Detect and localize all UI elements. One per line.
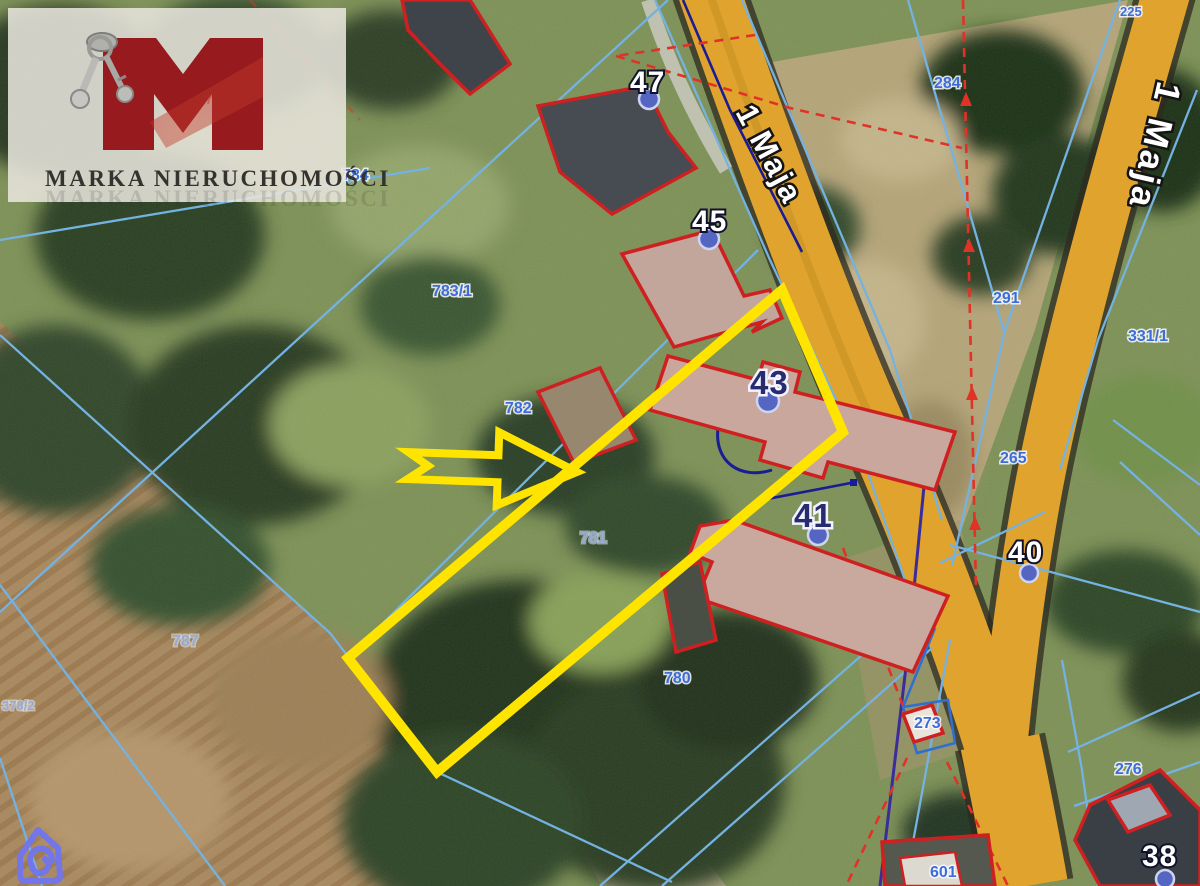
address-number: 38 [1142,840,1177,873]
agency-logo-panel: 788 MARKA NIERUCHOMOŚCI MARKA NIERUCHOMO… [8,8,391,211]
parcel-label: 331/1 [1128,328,1168,345]
parcel-label: 284 [934,75,961,92]
parcel-label: 265 [1000,450,1027,467]
parcel-label: 291 [993,290,1020,307]
parcel-label: 276 [1115,761,1142,778]
road-merged [1000,742,1028,886]
cadastral-satellite-map[interactable]: 1 Maja 1 Maja 47 45 43 41 40 38 784 783/… [0,0,1200,886]
parcel-label: 787 [172,633,199,650]
parcel-label: 225 [1120,4,1142,19]
address-number: 40 [1008,536,1043,569]
address-number: 41 [794,497,833,534]
parcel-label: 780 [664,670,691,687]
parcel-label: 273 [914,715,941,732]
address-number: 43 [750,364,789,401]
agency-name-reflection: MARKA NIERUCHOMOŚCI [45,185,391,211]
listing-map-screenshot: 1 Maja 1 Maja 47 45 43 41 40 38 784 783/… [0,0,1200,886]
parcel-label: 782 [505,400,532,417]
address-number: 45 [692,205,727,238]
parcel-label: 378/2 [2,698,35,713]
parcel-label: 781 [580,530,607,547]
address-number: 47 [630,66,665,99]
parcel-label: 783/1 [432,283,472,300]
parcel-label: 601 [930,864,957,881]
